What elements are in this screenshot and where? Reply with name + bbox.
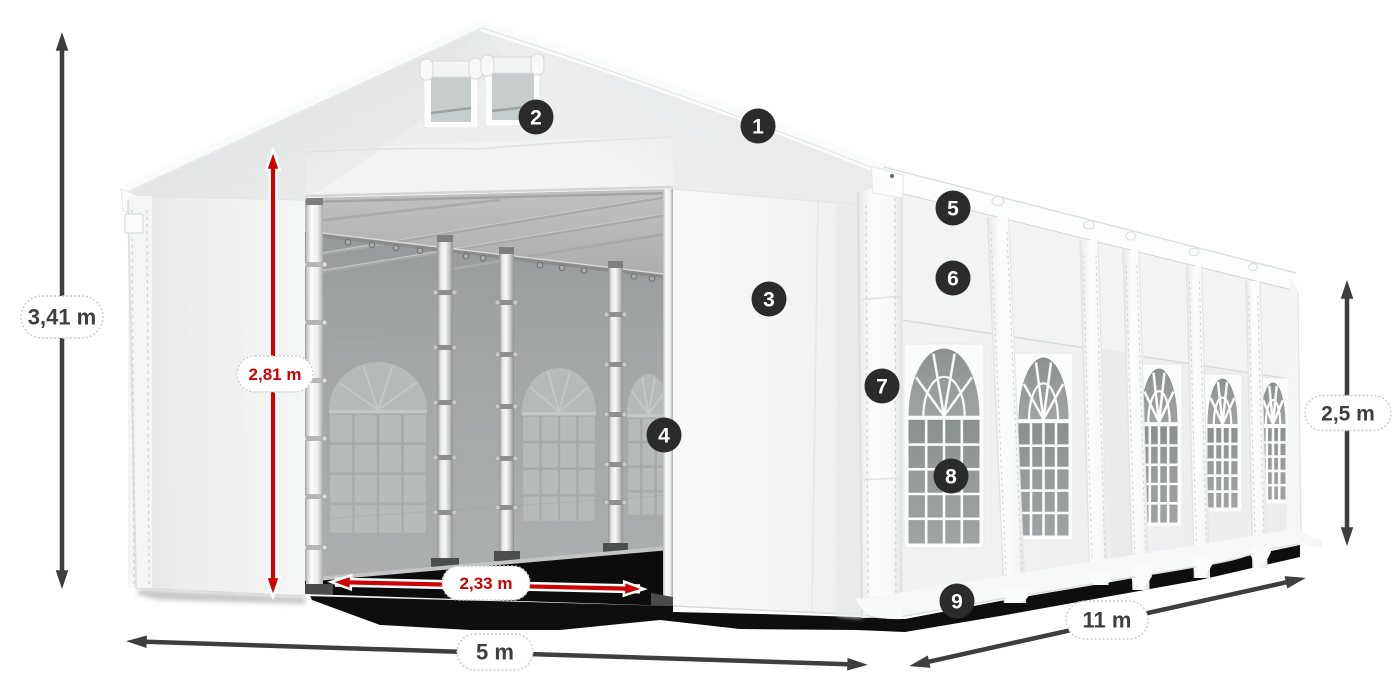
svg-text:2,33 m: 2,33 m bbox=[460, 574, 513, 593]
svg-text:8: 8 bbox=[945, 466, 957, 489]
svg-text:2: 2 bbox=[530, 107, 542, 130]
svg-text:11 m: 11 m bbox=[1083, 608, 1132, 633]
svg-text:3: 3 bbox=[763, 289, 775, 312]
svg-text:2,81 m: 2,81 m bbox=[249, 365, 302, 384]
svg-text:4: 4 bbox=[658, 425, 670, 448]
svg-text:9: 9 bbox=[951, 591, 963, 614]
svg-text:6: 6 bbox=[947, 268, 959, 291]
svg-text:2,5 m: 2,5 m bbox=[1321, 402, 1375, 425]
svg-text:1: 1 bbox=[752, 116, 764, 139]
svg-text:7: 7 bbox=[876, 376, 888, 399]
svg-text:3,41 m: 3,41 m bbox=[28, 305, 97, 330]
svg-text:5 m: 5 m bbox=[476, 640, 514, 665]
svg-text:5: 5 bbox=[947, 198, 959, 221]
